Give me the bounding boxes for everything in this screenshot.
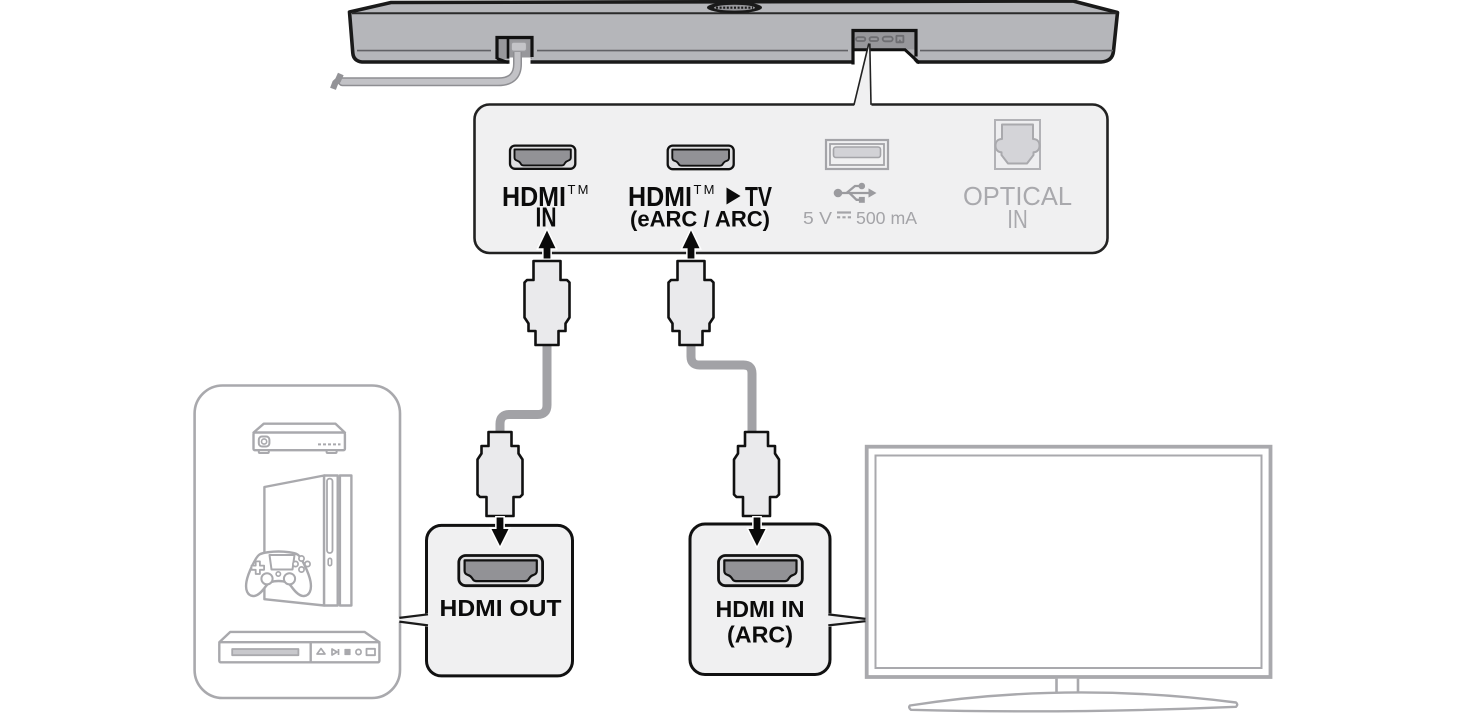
svg-text:HDMI IN: HDMI IN: [716, 596, 805, 622]
svg-text:500 mA: 500 mA: [856, 208, 917, 228]
svg-text:HDMI OUT: HDMI OUT: [440, 595, 563, 621]
svg-text:TM: TM: [568, 182, 589, 197]
svg-text:IN: IN: [1007, 206, 1028, 234]
svg-text:(eARC / ARC): (eARC / ARC): [630, 207, 770, 232]
svg-text:TM: TM: [694, 182, 715, 197]
svg-text:IN: IN: [536, 202, 557, 233]
svg-text:(ARC): (ARC): [727, 622, 793, 648]
svg-text:5 V: 5 V: [803, 208, 832, 228]
